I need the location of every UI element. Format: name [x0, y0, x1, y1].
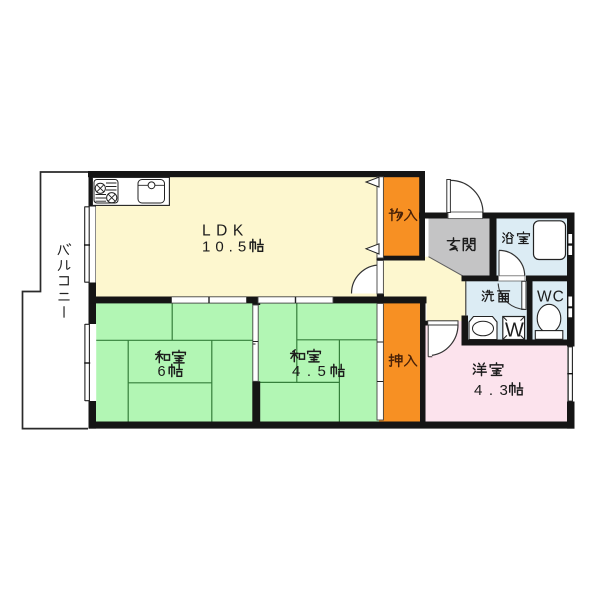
svg-text:4.5: 4.5 [292, 363, 332, 380]
svg-text:10.5: 10.5 [202, 239, 251, 256]
svg-text:W: W [505, 320, 524, 342]
svg-text:4.3: 4.3 [474, 382, 514, 399]
svg-text:WC: WC [537, 289, 565, 306]
svg-text:LDK: LDK [202, 223, 249, 240]
svg-text:6: 6 [158, 364, 166, 380]
